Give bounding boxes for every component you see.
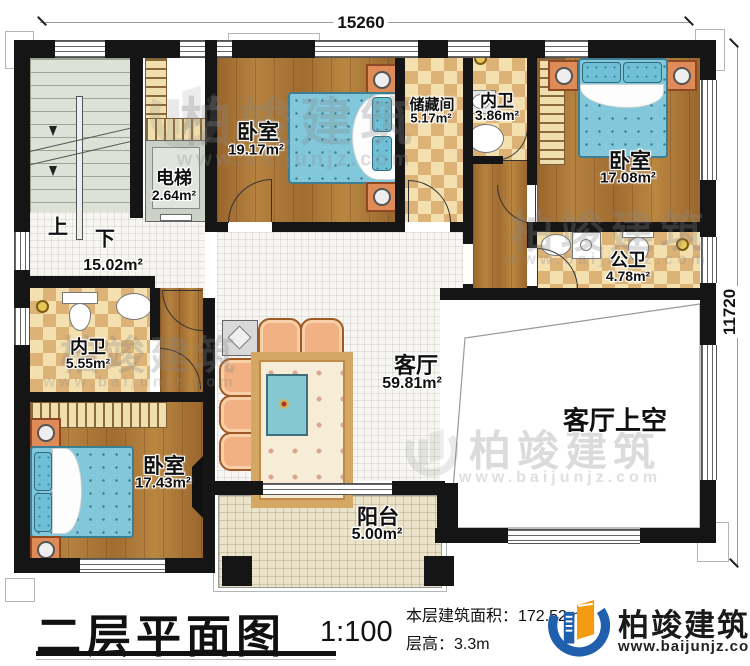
nightstand [548, 60, 579, 91]
wall [437, 483, 458, 528]
pillow [34, 452, 52, 491]
balcony-pillar [222, 556, 252, 586]
elevator-door [160, 214, 192, 221]
stair-arrow-icon [49, 166, 57, 176]
room-area-storage: 5.17m² [410, 111, 451, 126]
wall [435, 528, 508, 543]
wall [272, 222, 405, 232]
watermark-url: www.baijunjz.com [459, 469, 661, 487]
dimension-right-label: 11720 [720, 286, 740, 338]
watermark-logo-icon [398, 425, 458, 485]
room-area-balcony: 5.00m² [352, 526, 403, 544]
room-area-elevator: 2.64m² [152, 187, 196, 203]
brand-logo-icon [538, 596, 612, 662]
shower-head-icon [36, 300, 49, 313]
pillow [34, 493, 52, 532]
sink [116, 293, 152, 320]
stair-down-label: 下 [95, 223, 115, 252]
door-leaf [408, 180, 409, 222]
watermark-url: www.baijunjz.com [507, 251, 709, 269]
stair-up-label: 上 [48, 211, 68, 240]
balcony-pillar [424, 556, 454, 586]
watermark-url: www.baijunjz.com [177, 149, 414, 172]
stair-arrow-icon [49, 126, 57, 136]
hall-area-label: 15.02m² [83, 257, 143, 275]
dimension-top-label: 15260 [333, 13, 388, 33]
wall [14, 276, 155, 288]
coffee-table-deco [278, 398, 290, 410]
pillow [623, 62, 662, 83]
room-area-bedroom-bottom: 17.43m² [135, 475, 191, 492]
wall [640, 528, 716, 543]
title-underline-thin [36, 659, 336, 660]
window [545, 40, 588, 58]
door-leaf [162, 290, 202, 291]
wall [490, 40, 545, 58]
window [701, 80, 717, 180]
window [14, 232, 30, 270]
window [701, 345, 717, 480]
window [448, 40, 490, 58]
sliding-door [263, 483, 392, 495]
wall [700, 40, 716, 80]
wall [14, 558, 80, 573]
wall [463, 58, 473, 232]
room-area-public-bath: 4.78m² [606, 268, 650, 284]
wall [232, 40, 315, 58]
wall [14, 40, 30, 232]
window [80, 558, 165, 573]
room-label-void: 客厅上空 [563, 401, 667, 438]
title-underline [36, 651, 336, 656]
nightstand [666, 60, 697, 91]
watermark-text: 柏竣建筑 [180, 81, 420, 156]
floor-plan-page: 柏竣建筑 www.baijunjz.com 柏竣建筑 www.baijunjz.… [0, 0, 750, 666]
stair-rail [76, 96, 83, 240]
nightstand [366, 182, 398, 212]
wall [14, 345, 30, 573]
wall [588, 40, 716, 58]
wall [205, 222, 228, 232]
wall [213, 481, 263, 495]
wall [105, 40, 180, 58]
door-leaf [271, 179, 272, 222]
window [315, 40, 418, 58]
room-area-bedroom-top: 19.17m² [228, 142, 284, 159]
window [55, 40, 105, 58]
watermark-url: www.baijunjz.com [43, 374, 236, 391]
room-area-living: 59.81m² [382, 375, 442, 393]
wall [30, 392, 203, 402]
room-area-bedroom-right: 17.08m² [600, 170, 656, 187]
wall [463, 232, 473, 244]
brand-url: www.baijunjz.com [618, 638, 750, 655]
wall [440, 288, 716, 300]
window [14, 308, 30, 345]
room-area-bath-top: 3.86m² [475, 107, 519, 123]
pillow [582, 62, 621, 83]
wall [463, 156, 503, 164]
wall [165, 558, 215, 573]
floor-height-line: 层高：3.3m [406, 630, 490, 654]
window [508, 529, 640, 544]
wall [527, 58, 537, 185]
nightstand [30, 418, 61, 448]
plan-scale: 1:100 [320, 616, 393, 649]
wall [418, 40, 448, 58]
wall [450, 222, 473, 232]
room-area-bath-left: 5.55m² [66, 355, 110, 371]
